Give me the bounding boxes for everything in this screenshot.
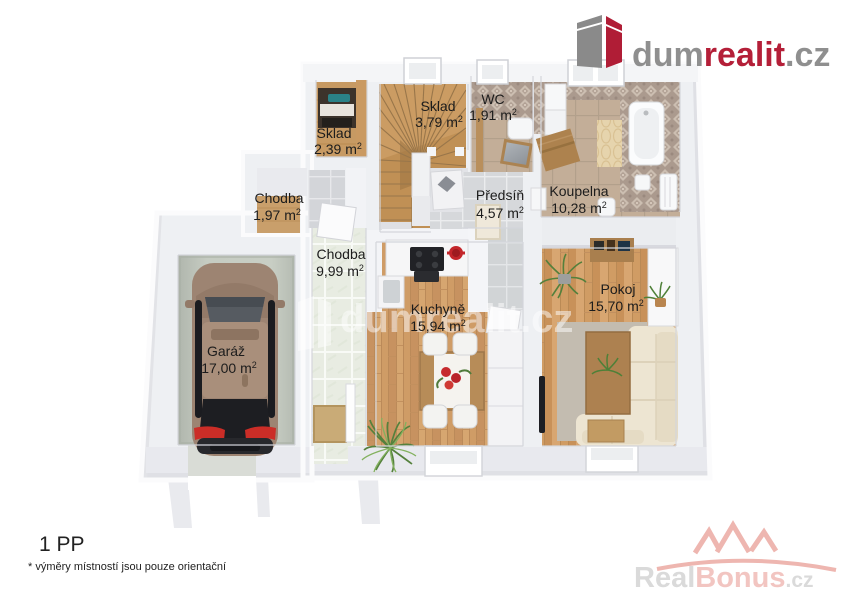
svg-text:Koupelna: Koupelna [549, 183, 608, 199]
svg-text:17,00 m2: 17,00 m2 [201, 360, 257, 376]
svg-text:WC: WC [481, 91, 504, 107]
svg-text:Předsíň: Předsíň [476, 187, 524, 203]
svg-text:Kuchyně: Kuchyně [411, 301, 466, 317]
svg-text:15,94 m2: 15,94 m2 [410, 318, 466, 334]
svg-text:9,99 m2: 9,99 m2 [316, 263, 364, 279]
svg-text:Sklad: Sklad [316, 125, 351, 141]
svg-text:1,91 m2: 1,91 m2 [469, 107, 517, 123]
svg-text:dumrealit.cz: dumrealit.cz [632, 36, 830, 74]
svg-text:1,97 m2: 1,97 m2 [253, 207, 301, 223]
svg-text:15,70 m2: 15,70 m2 [588, 298, 644, 314]
svg-text:Sklad: Sklad [420, 98, 455, 114]
svg-text:Garáž: Garáž [207, 343, 245, 359]
svg-text:4,57 m2: 4,57 m2 [476, 205, 524, 221]
svg-text:1 PP: 1 PP [39, 533, 85, 556]
svg-text:10,28 m2: 10,28 m2 [551, 200, 607, 216]
svg-text:3,79 m2: 3,79 m2 [415, 114, 463, 130]
svg-text:Chodba: Chodba [316, 246, 365, 262]
svg-text:Pokoj: Pokoj [600, 281, 635, 297]
svg-text:2,39 m2: 2,39 m2 [314, 141, 362, 157]
svg-text:* výměry místností jsou pouze: * výměry místností jsou pouze orientační [28, 561, 226, 573]
svg-text:Chodba: Chodba [254, 190, 303, 206]
